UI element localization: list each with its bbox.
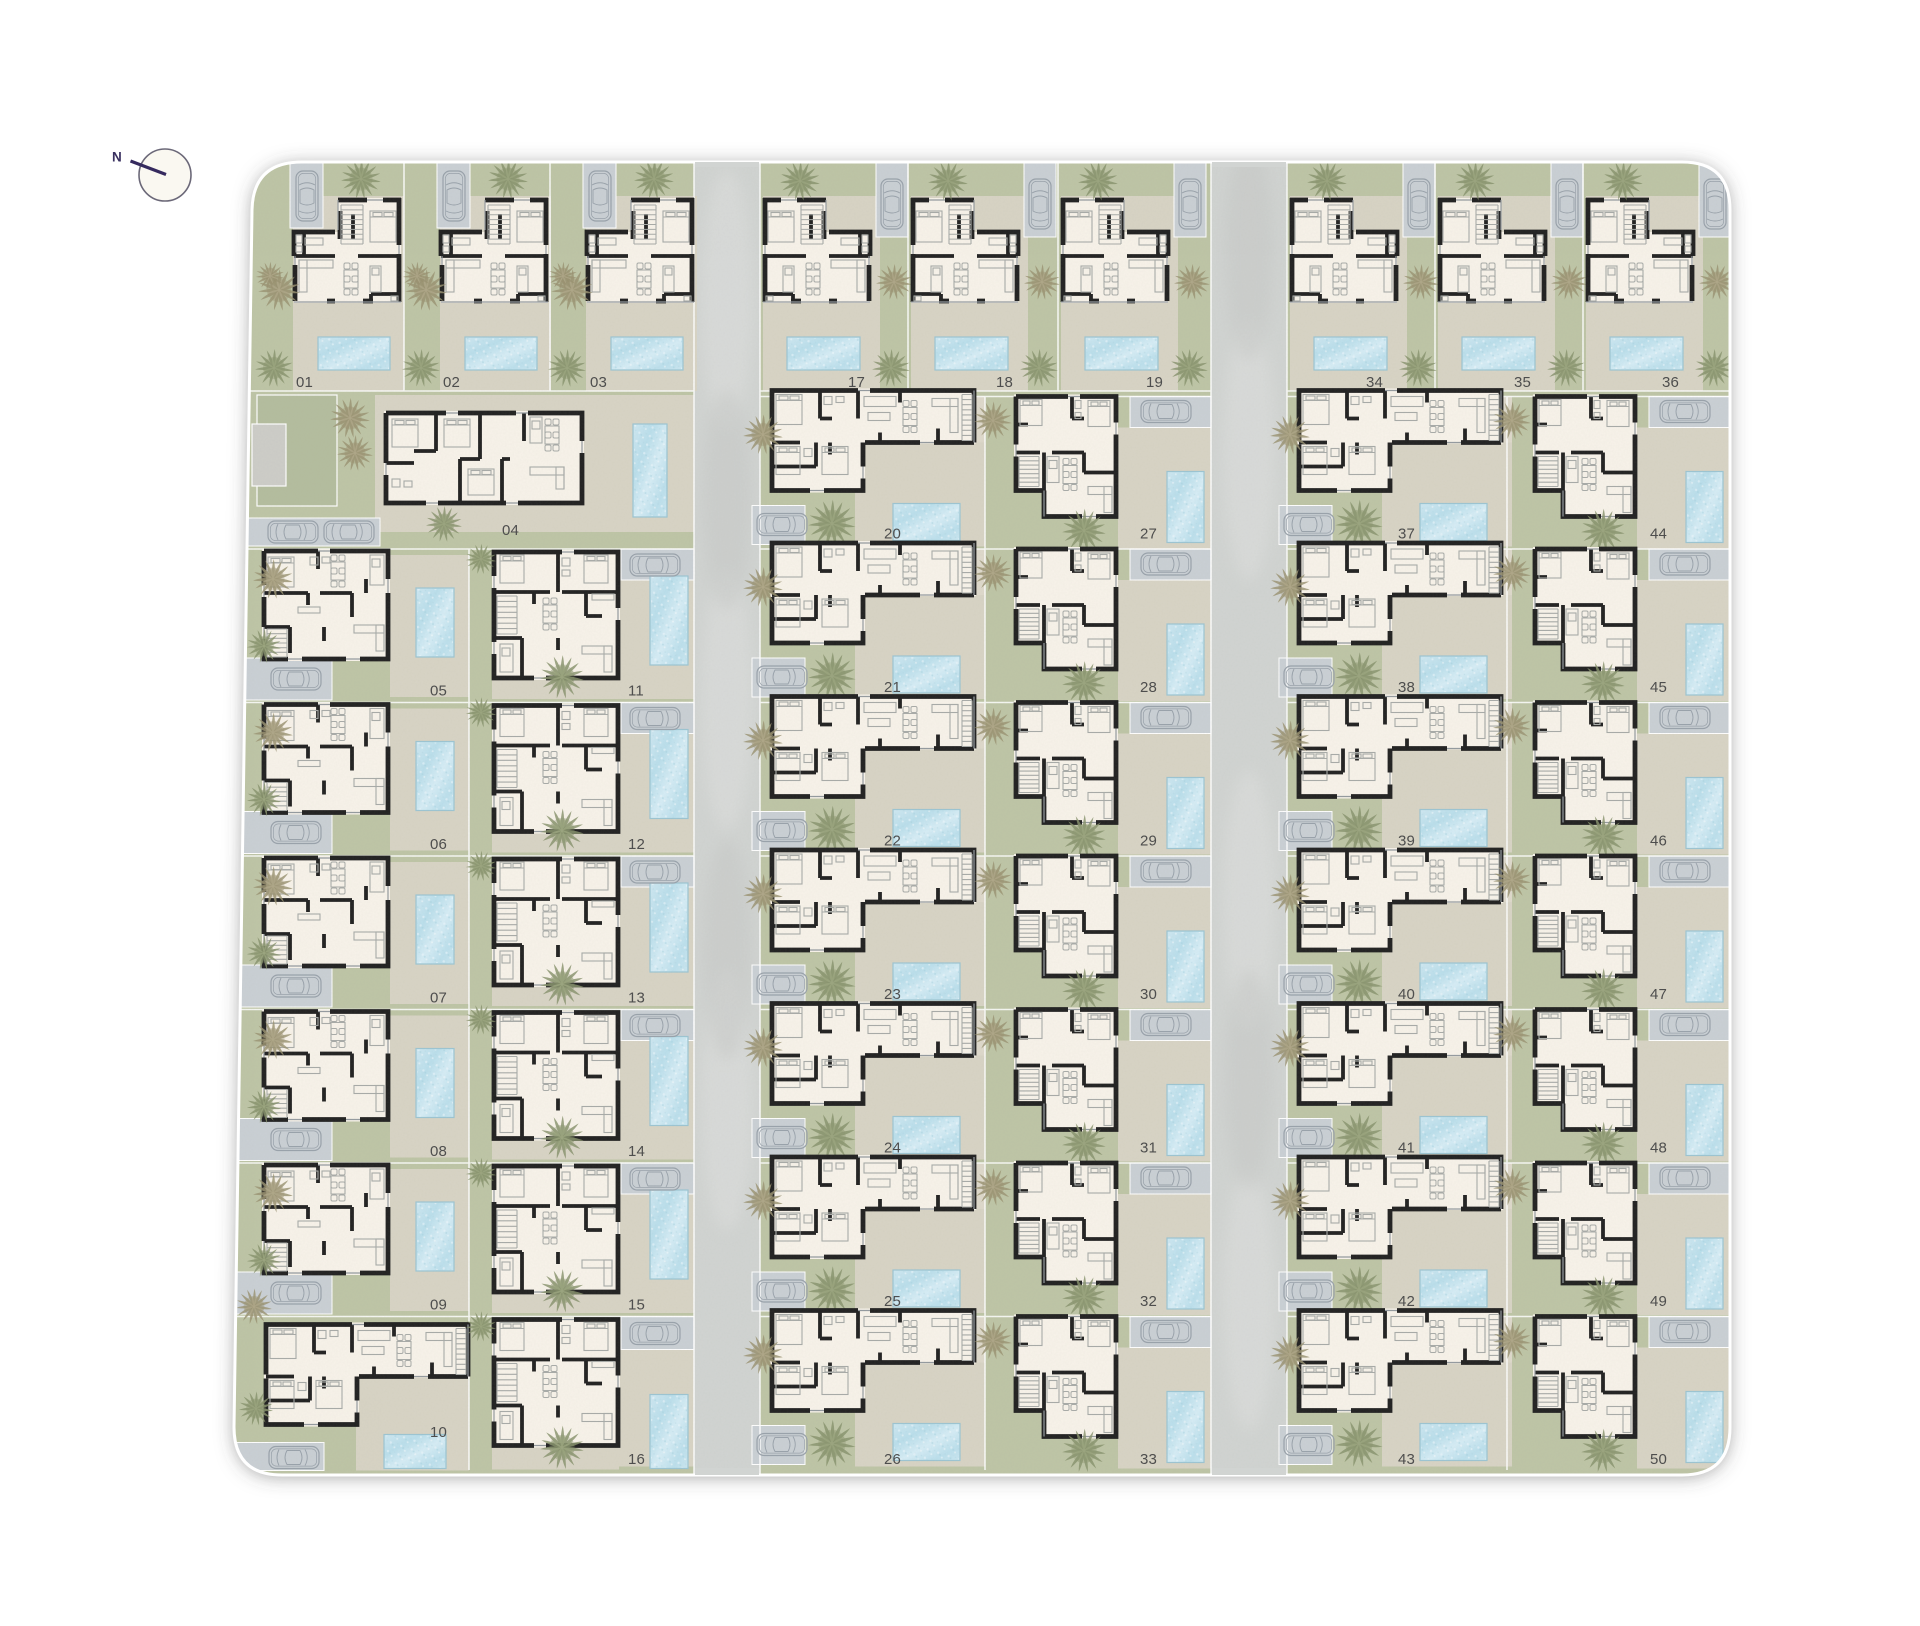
svg-text:N: N (112, 150, 122, 165)
